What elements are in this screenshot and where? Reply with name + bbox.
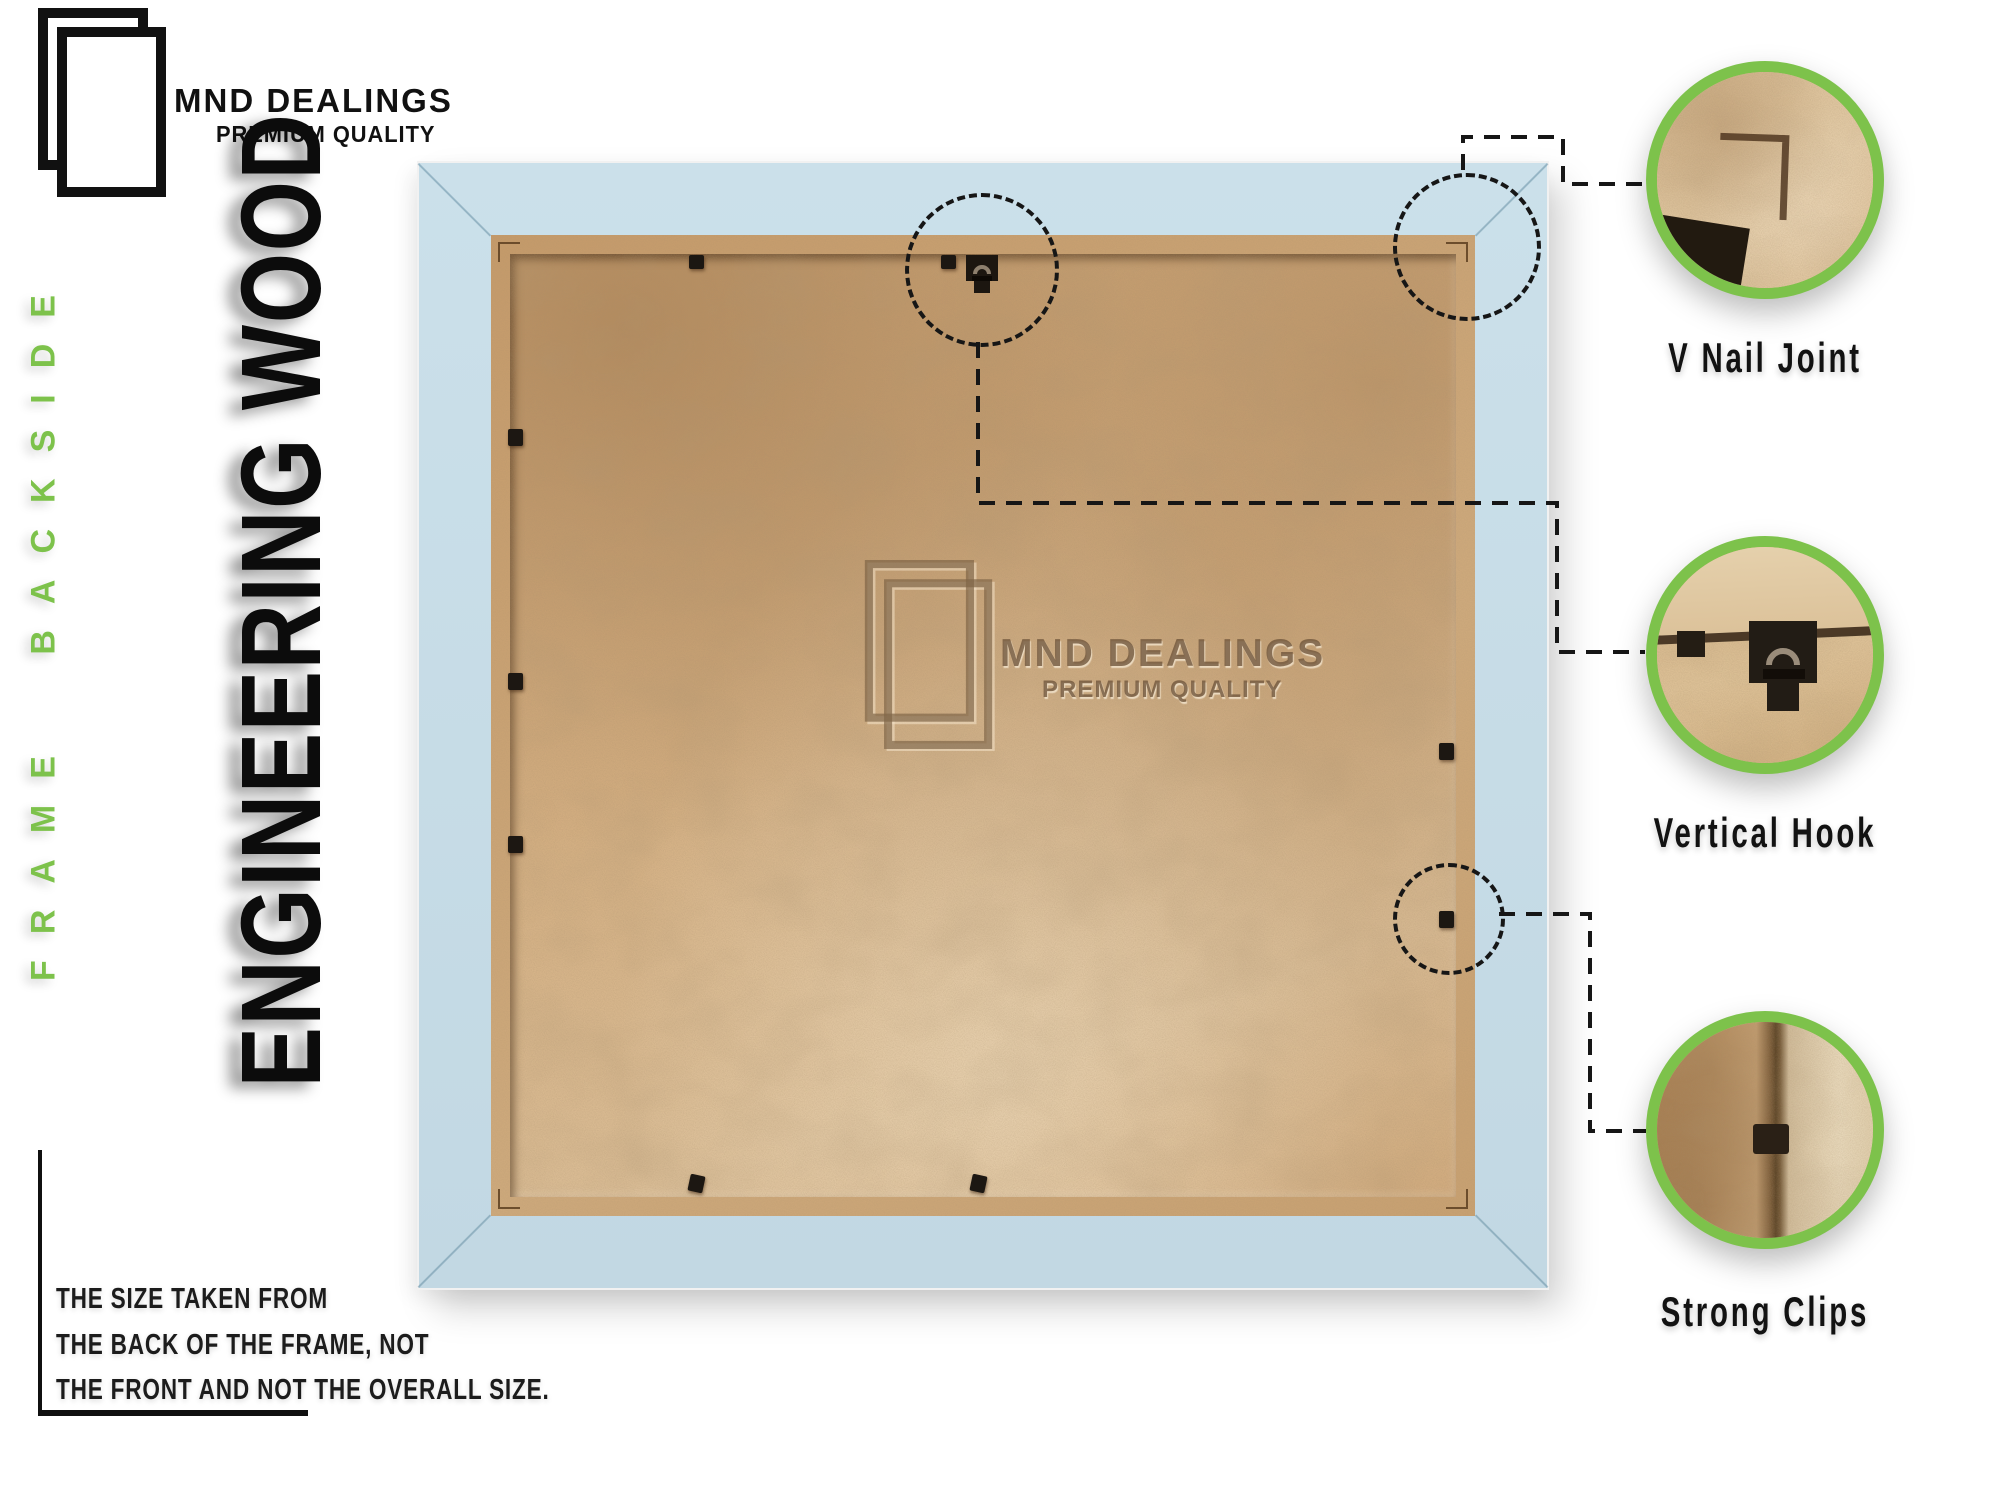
size-note-line: THE SIZE TAKEN FROM — [56, 1283, 328, 1316]
note-rule-horizontal — [38, 1410, 308, 1416]
strong-clip — [1439, 743, 1454, 760]
clip-detail — [1677, 631, 1705, 657]
callout-circle — [1646, 61, 1884, 299]
watermark-tagline: PREMIUM QUALITY — [1042, 676, 1282, 704]
clip-highlight-circle — [1393, 863, 1505, 975]
callout-vertical-hook — [1646, 536, 1884, 774]
mdf-backboard: MND DEALINGS PREMIUM QUALITY — [491, 235, 1475, 1216]
engineering-wood-label: ENGINEERING WOOD — [216, 113, 346, 1088]
callout-label-v-nail-joint: V Nail Joint — [1618, 334, 1912, 382]
callout-v-nail-joint — [1646, 61, 1884, 299]
callout-strong-clips — [1646, 1011, 1884, 1249]
hook-detail — [1737, 621, 1829, 721]
size-note-line: THE BACK OF THE FRAME, NOT — [56, 1329, 429, 1362]
strong-clip — [508, 429, 523, 446]
miter-line — [418, 1214, 492, 1288]
callout-label-vertical-hook: Vertical Hook — [1618, 809, 1912, 857]
strong-clip — [689, 255, 704, 269]
hook-highlight-circle — [905, 193, 1059, 347]
note-rule-vertical — [38, 1150, 42, 1416]
frame-backside-label: FRAME BACKSIDE — [25, 269, 64, 981]
brand-frames-icon — [38, 8, 166, 198]
v-nail-groove — [1718, 133, 1790, 220]
size-note-line: THE FRONT AND NOT THE OVERALL SIZE. — [56, 1374, 550, 1407]
corner-highlight-circle — [1393, 173, 1541, 321]
clip-detail — [1753, 1124, 1789, 1154]
strong-clip — [508, 836, 523, 853]
back-panel: MND DEALINGS PREMIUM QUALITY — [510, 254, 1456, 1197]
callout-circle — [1646, 1011, 1884, 1249]
watermark-brand-name: MND DEALINGS — [1000, 632, 1325, 676]
miter-line — [418, 163, 492, 237]
callout-label-strong-clips: Strong Clips — [1618, 1288, 1912, 1336]
watermark-frames-icon — [861, 559, 996, 751]
infographic-page: MND DEALINGS PREMIUM QUALITY FRAME BACKS… — [0, 0, 2000, 1500]
miter-line — [1475, 1214, 1549, 1288]
corner-shadow — [1646, 212, 1750, 299]
strong-clip — [508, 673, 523, 690]
callout-circle — [1646, 536, 1884, 774]
